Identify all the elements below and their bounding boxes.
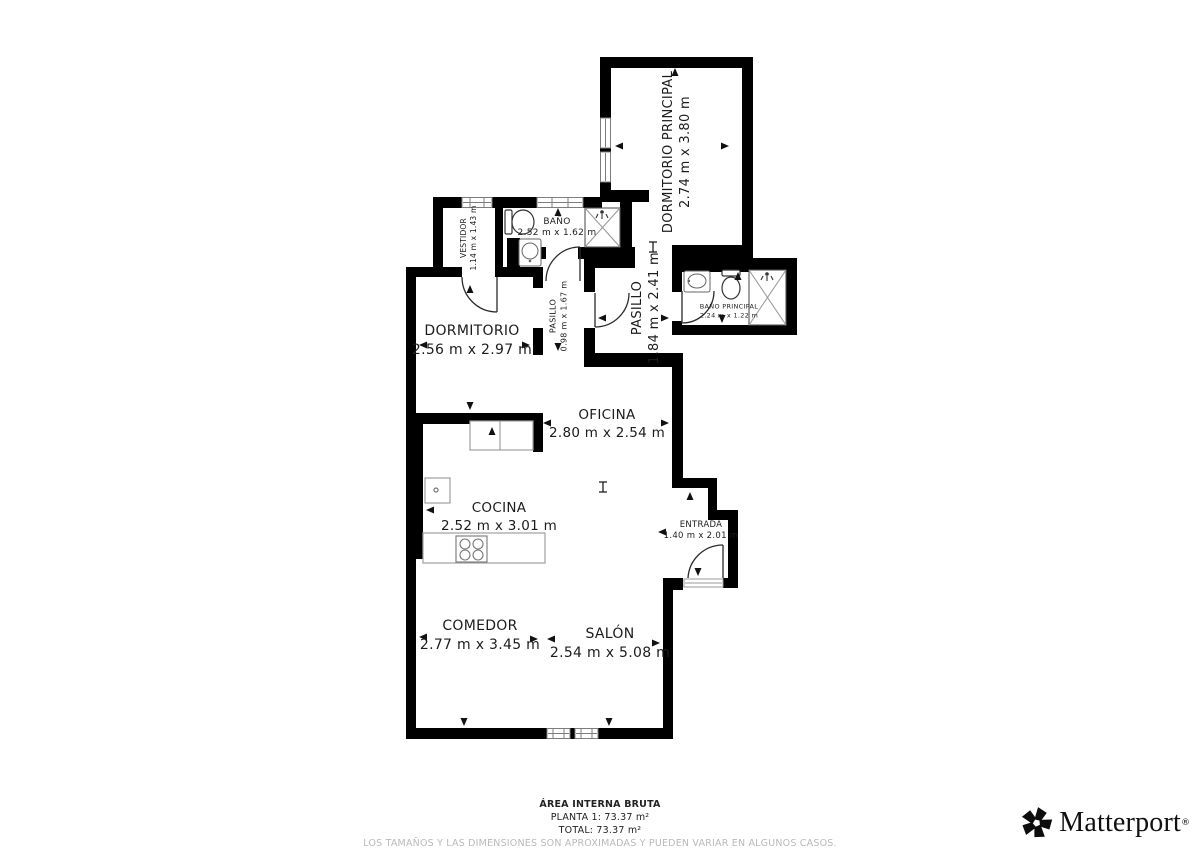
door-arc — [546, 247, 580, 281]
room-label-entrada: ENTRADA 1.40 m x 2.01 m — [664, 520, 739, 542]
matterport-logo-icon — [1020, 800, 1053, 846]
room-name: BAÑO PRINCIPAL — [700, 303, 758, 312]
room-name: PASILLO — [629, 252, 646, 364]
room-name: PASILLO — [549, 281, 560, 352]
room-dims: 2.54 m x 5.08 m — [550, 644, 670, 663]
door-arc — [595, 293, 629, 327]
room-name: COCINA — [441, 499, 557, 517]
room-label-pasillo-pequeno: PASILLO 0.98 m x 1.67 m — [549, 281, 570, 352]
room-name: DORMITORIO PRINCIPAL — [660, 71, 677, 233]
room-dims: 2.52 m x 3.01 m — [441, 517, 557, 535]
room-dims: 1.40 m x 2.01 m — [664, 531, 739, 542]
room-name: OFICINA — [549, 406, 665, 424]
window-icon — [547, 729, 570, 739]
door-arc — [462, 277, 497, 312]
room-dims: 2.56 m x 2.97 m — [412, 341, 532, 360]
room-dims: 2.52 m x 1.62 m — [518, 228, 597, 239]
room-dims: 1.84 m x 2.41 m — [646, 252, 663, 364]
room-label-vestidor: VESTIDOR 1.14 m x 1.43 m — [459, 206, 479, 271]
room-label-pasillo: PASILLO 1.84 m x 2.41 m — [629, 252, 663, 364]
room-dims: 2.80 m x 2.54 m — [549, 424, 665, 442]
entry-sill — [684, 579, 723, 587]
room-label-cocina: COCINA 2.52 m x 3.01 m — [441, 499, 557, 535]
window-icon — [537, 198, 583, 208]
matterport-wordmark: Matterport — [1059, 807, 1181, 839]
registered-mark: ® — [1181, 818, 1190, 828]
room-label-salon: SALÓN 2.54 m x 5.08 m — [550, 625, 670, 663]
stove-icon — [456, 536, 487, 562]
room-name: VESTIDOR — [459, 206, 469, 271]
room-name: SALÓN — [550, 625, 670, 644]
room-name: DORMITORIO — [412, 322, 532, 341]
window-icon — [601, 118, 611, 148]
door-arc — [688, 545, 723, 578]
matterport-logo: Matterport® — [1020, 799, 1190, 847]
room-name: ENTRADA — [664, 520, 739, 531]
room-name: COMEDOR — [420, 617, 540, 636]
room-dims: 0.98 m x 1.67 m — [559, 281, 570, 352]
room-dims: 2.24 m x 1.22 m — [700, 311, 758, 320]
window-icon — [575, 729, 598, 739]
room-name: BAÑO — [518, 217, 597, 228]
sink-icon — [684, 271, 710, 292]
room-dims: 2.74 m x 3.80 m — [677, 71, 694, 233]
room-label-dormitorio: DORMITORIO 2.56 m x 2.97 m — [412, 322, 532, 360]
sink-icon — [519, 239, 541, 266]
room-label-oficina: OFICINA 2.80 m x 2.54 m — [549, 406, 665, 442]
room-label-dormitorio-principal: DORMITORIO PRINCIPAL 2.74 m x 3.80 m — [660, 71, 694, 233]
room-dims: 2.77 m x 3.45 m — [420, 636, 540, 655]
floorplan-page: DORMITORIO PRINCIPAL 2.74 m x 3.80 m VES… — [0, 0, 1200, 849]
window-icon — [601, 152, 611, 182]
room-label-bano-principal: BAÑO PRINCIPAL 2.24 m x 1.22 m — [700, 303, 758, 320]
room-dims: 1.14 m x 1.43 m — [469, 206, 479, 271]
room-label-comedor: COMEDOR 2.77 m x 3.45 m — [420, 617, 540, 655]
room-label-bano: BAÑO 2.52 m x 1.62 m — [518, 217, 597, 239]
